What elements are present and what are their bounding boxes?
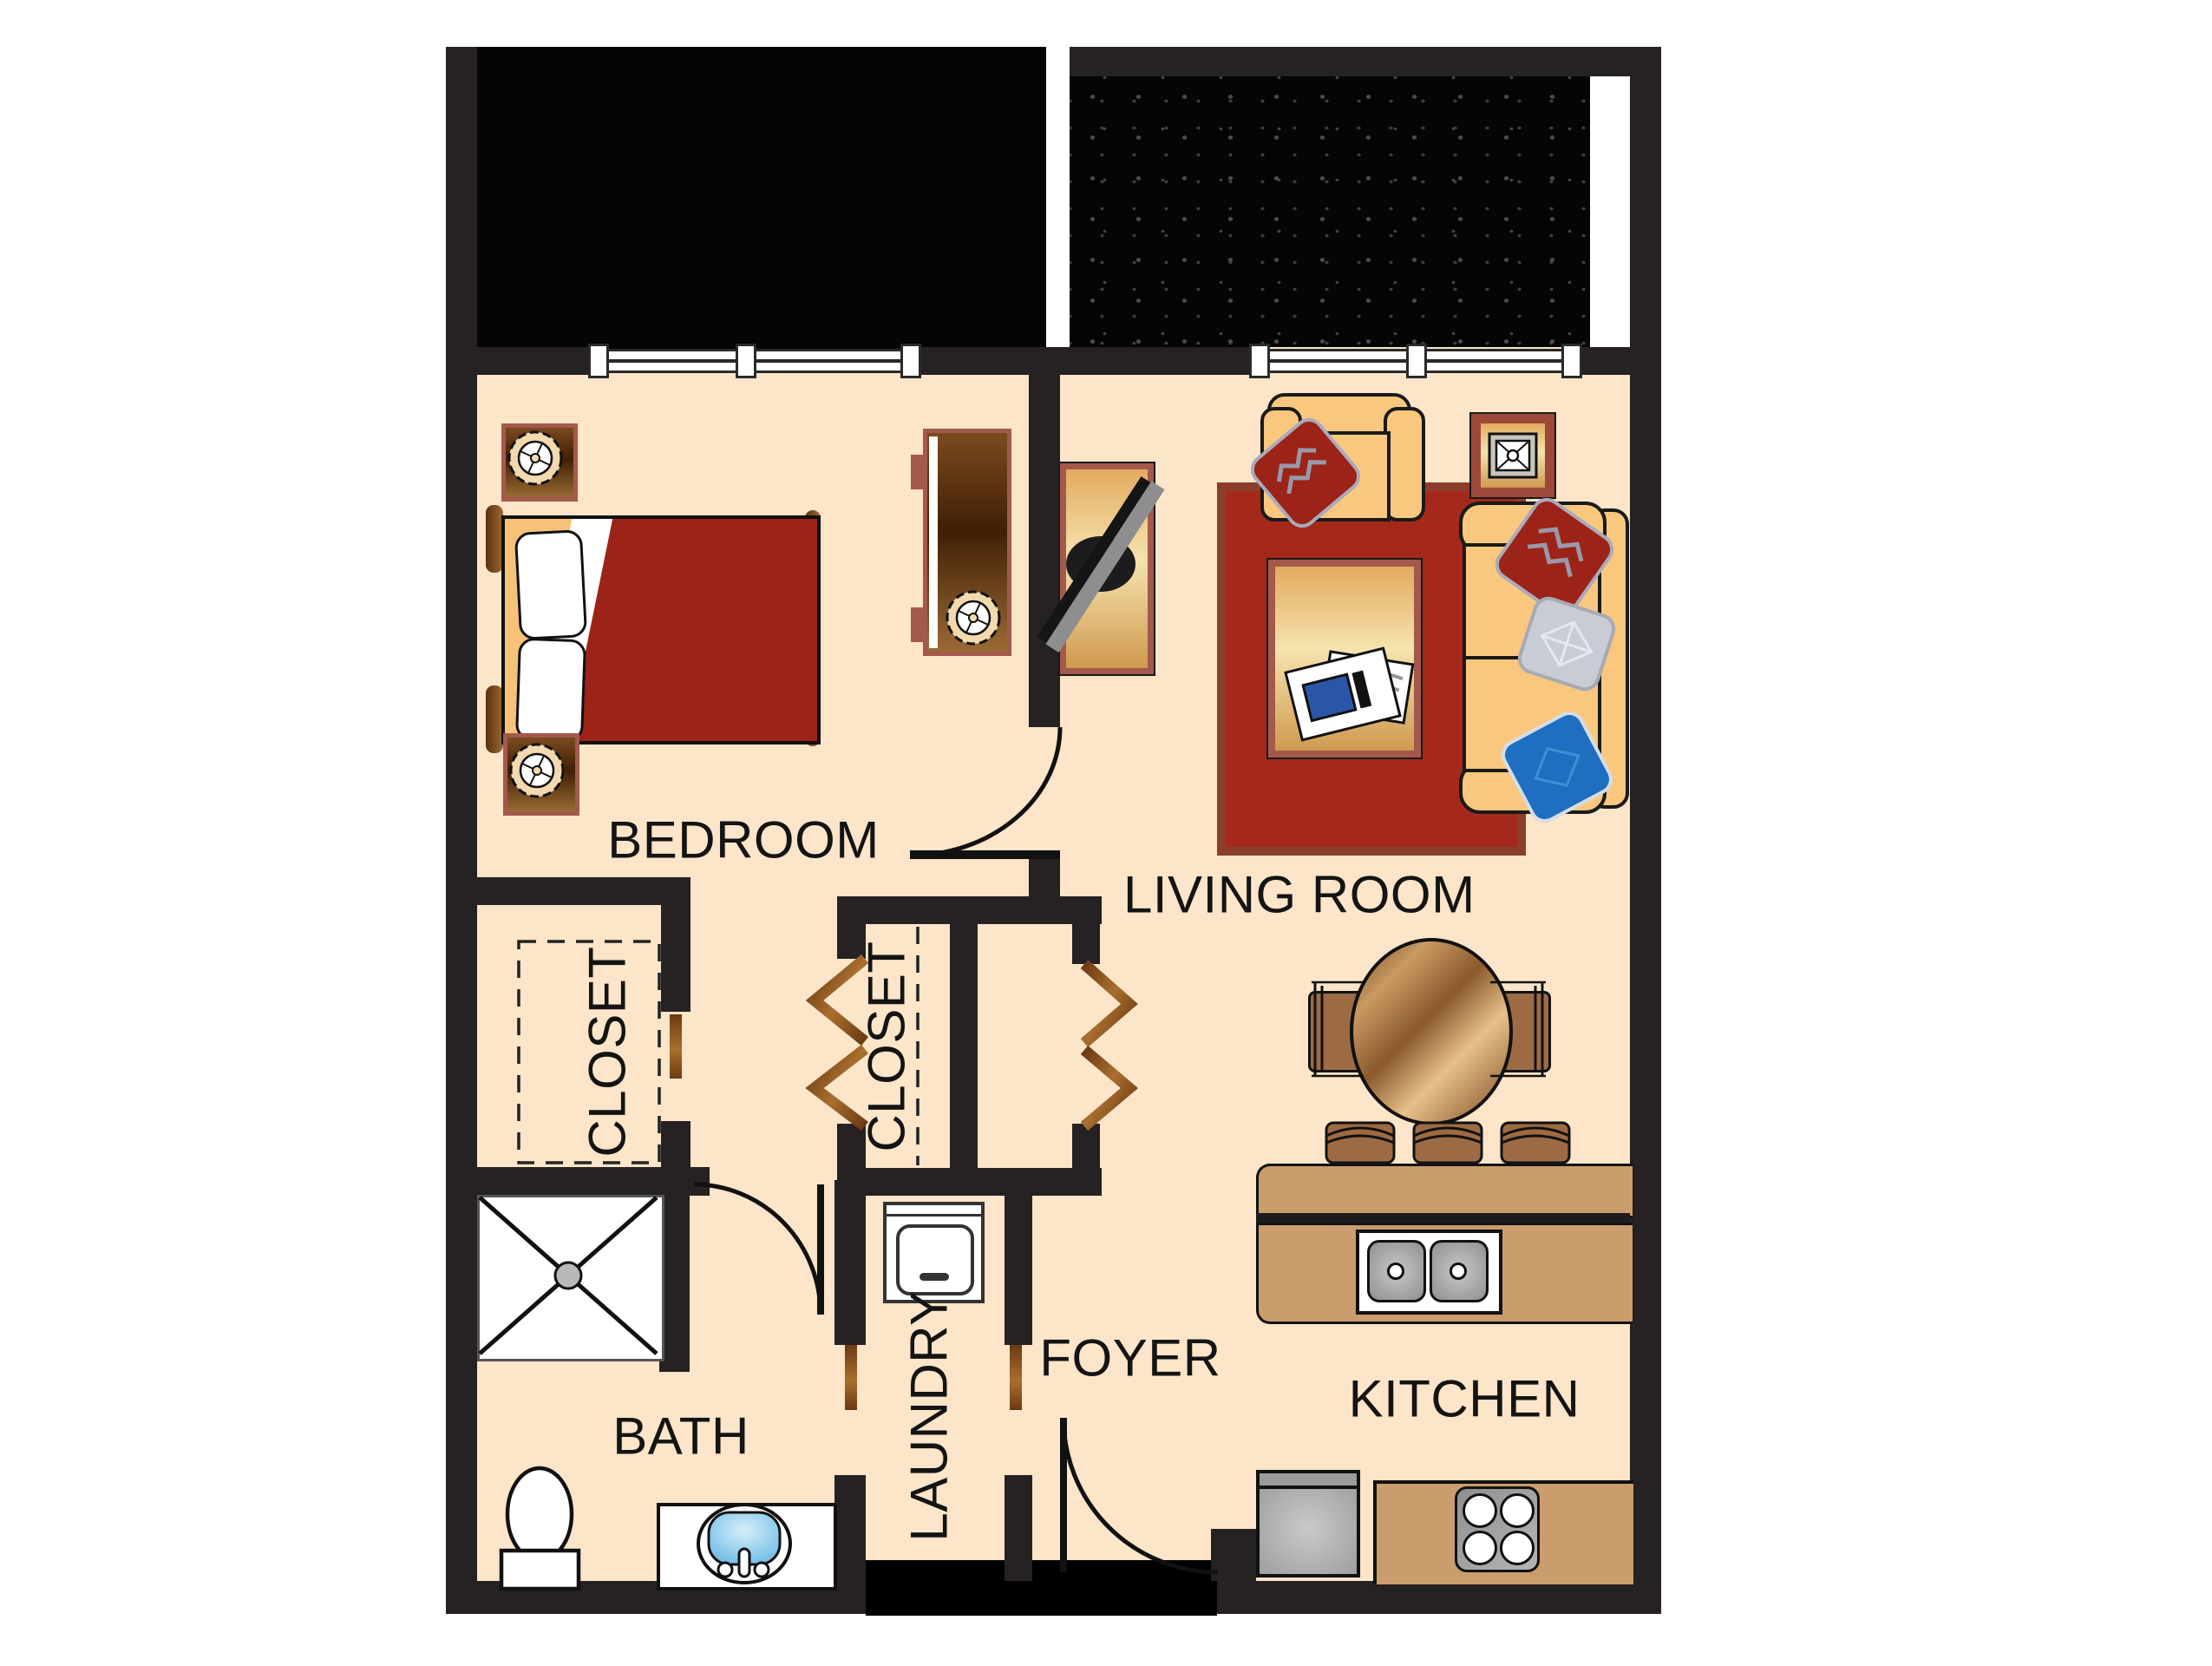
bar-stool <box>1414 1123 1482 1163</box>
faucet-handle <box>755 1563 769 1577</box>
lamp-icon <box>947 592 999 644</box>
bar-stool <box>1326 1123 1394 1163</box>
magazines <box>1286 648 1413 740</box>
side-table-tray <box>1489 434 1536 477</box>
room-label-closet-bedroom: CLOSET <box>578 946 638 1157</box>
plan-vector-overlay <box>0 0 2212 1666</box>
tv <box>1037 475 1165 653</box>
shower-symbol <box>480 1197 657 1354</box>
faucet <box>739 1549 749 1577</box>
faucet-handle <box>718 1563 732 1577</box>
room-label-laundry: LAUNDRY <box>900 1290 959 1541</box>
bedroom-door <box>910 727 1060 859</box>
dining-chair-back <box>1312 982 1546 1076</box>
room-label-bedroom: BEDROOM <box>607 810 880 870</box>
room-label-kitchen: KITCHEN <box>1349 1369 1580 1429</box>
lamp-icon <box>511 744 563 797</box>
room-label-foyer: FOYER <box>1039 1328 1221 1388</box>
pillow-red-zigzag <box>1247 414 1364 531</box>
toilet <box>501 1468 579 1589</box>
foyer-closet-bifold-doors <box>1084 964 1129 1126</box>
pillow-silver <box>1516 595 1618 693</box>
bath-sink <box>698 1505 790 1583</box>
room-label-closet-hall: CLOSET <box>857 941 917 1151</box>
bath-door <box>694 1184 824 1315</box>
entry-door <box>1060 1418 1218 1572</box>
bar-stool <box>1502 1123 1569 1163</box>
pillow-blue <box>1498 708 1615 825</box>
room-label-bath: BATH <box>612 1407 749 1466</box>
lamp-icon <box>509 432 561 484</box>
floor-plan-page: BEDROOM LIVING ROOM CLOSET CLOSET BATH L… <box>0 0 2212 1666</box>
room-label-living-room: LIVING ROOM <box>1123 865 1476 925</box>
